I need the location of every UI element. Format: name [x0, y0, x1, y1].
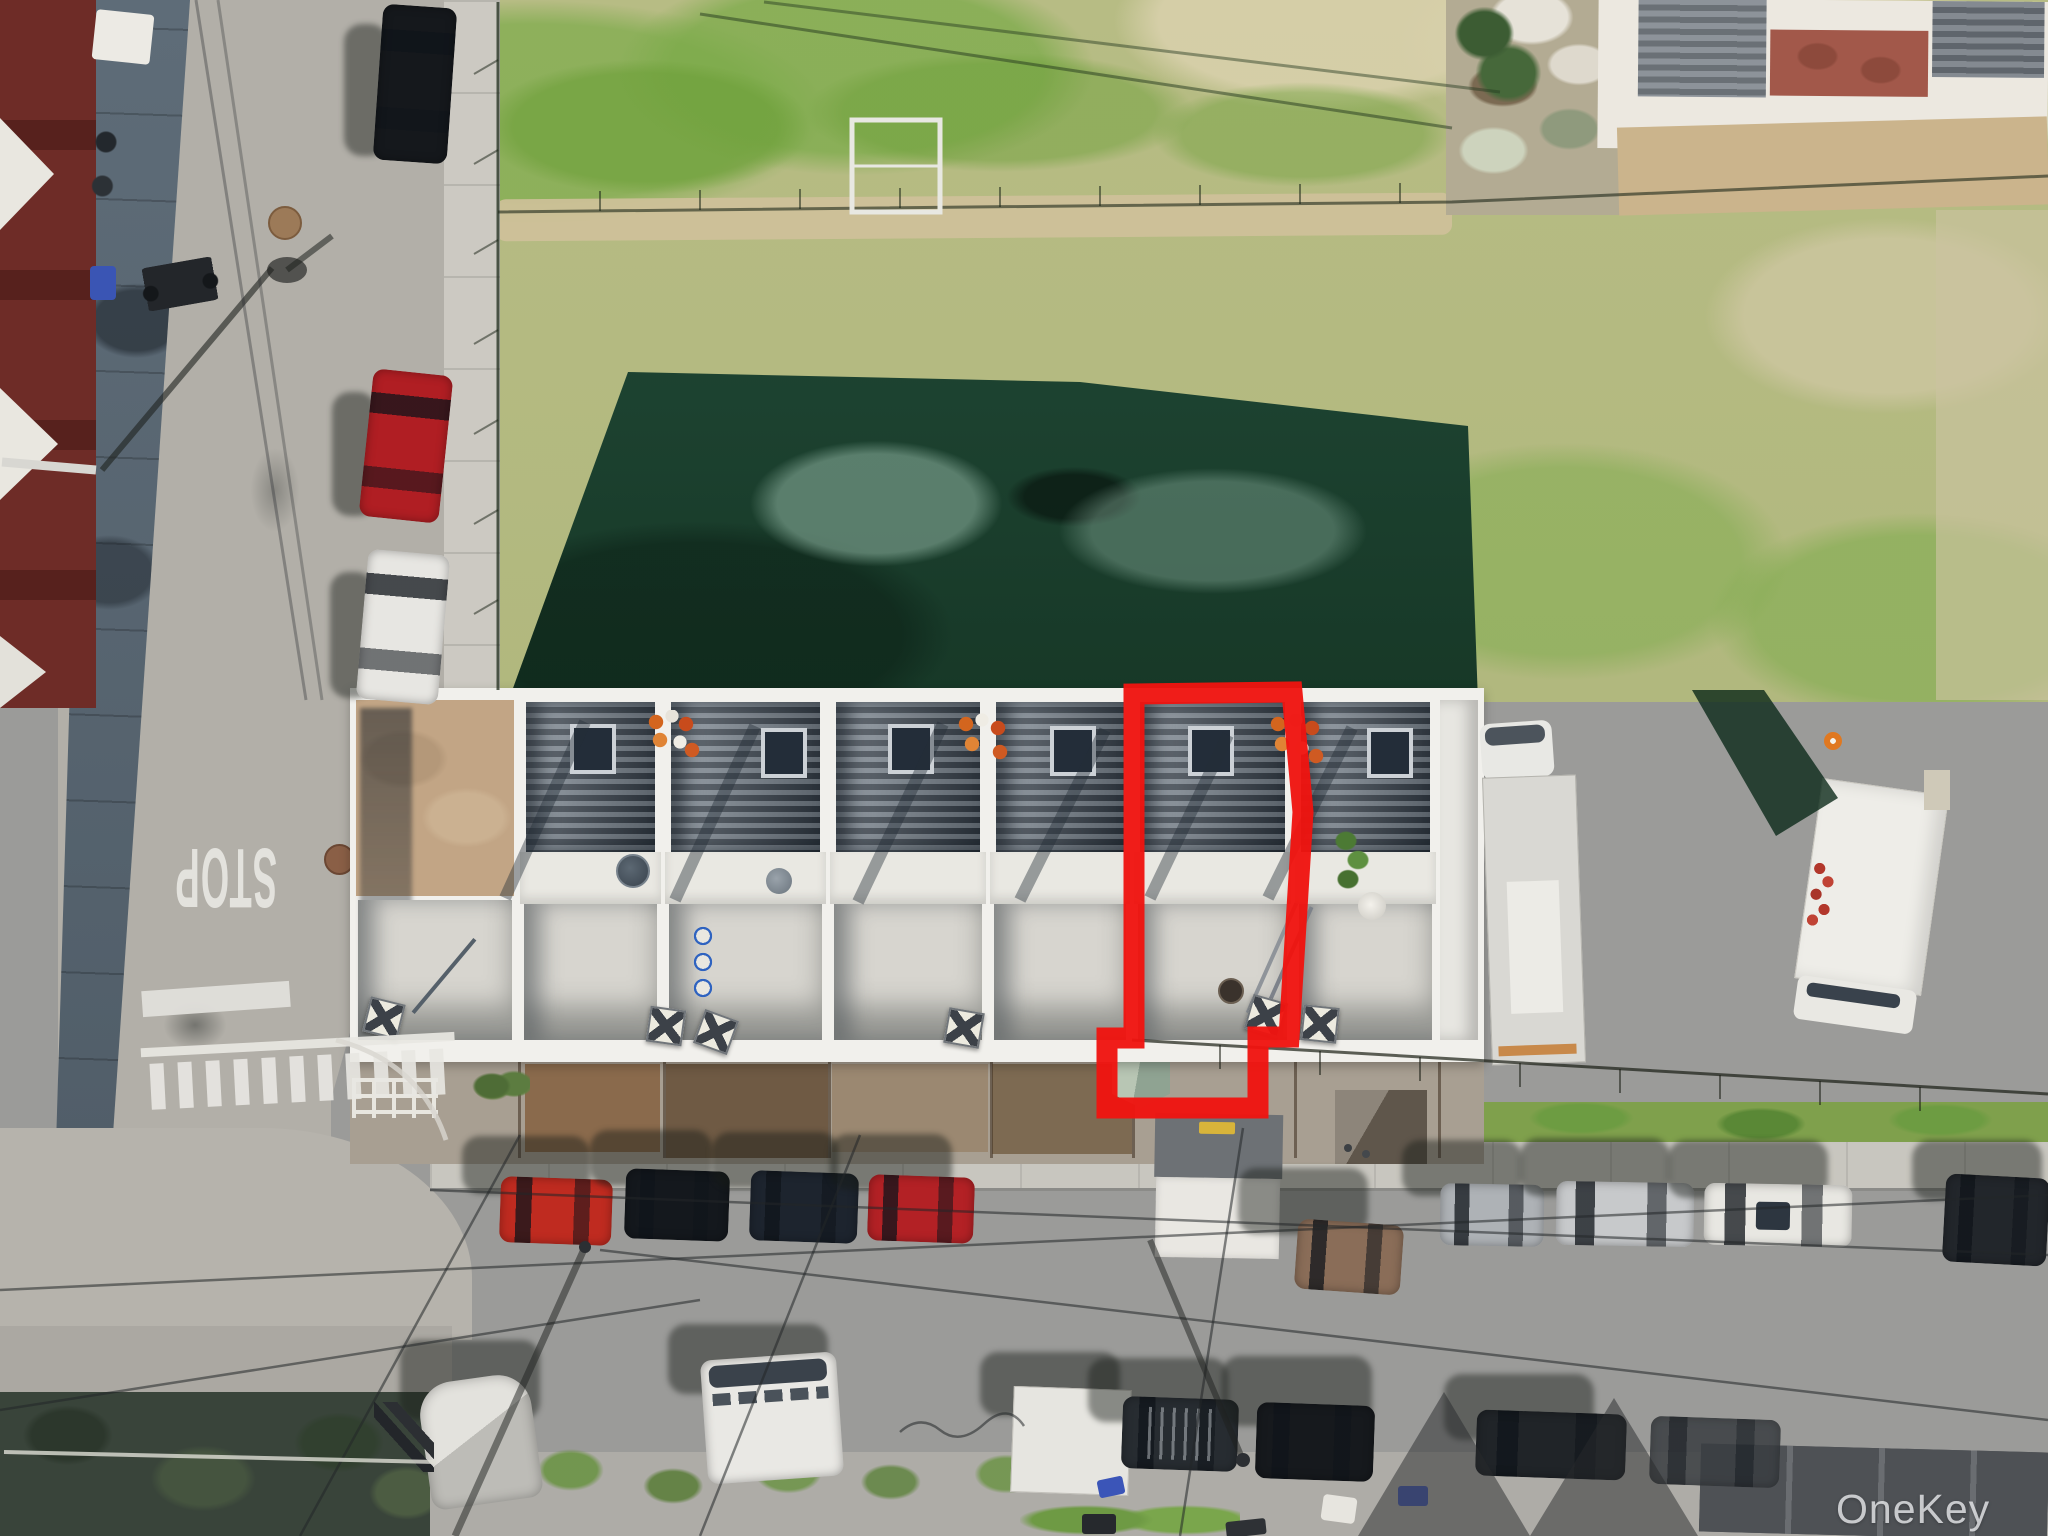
- corner-yard-fence: [352, 1078, 438, 1118]
- unit-6-front-band: [1134, 852, 1291, 904]
- pavement-stain: [240, 430, 310, 550]
- unit-8-end: [1440, 688, 1480, 1062]
- white-passenger-van: [700, 1351, 844, 1484]
- shingle-roof-section: [1932, 1, 2045, 78]
- parked-black-suv: [1255, 1402, 1376, 1482]
- parked-car-red-sedan: [867, 1174, 975, 1244]
- white-box-truck-roof: [92, 9, 155, 65]
- sidewalk-patch-right: [1924, 770, 1950, 810]
- parked-dark-car: [1649, 1416, 1781, 1488]
- van-windshield: [708, 1358, 827, 1388]
- stop-road-marking: STOP: [223, 830, 277, 926]
- sidewalk-debris-dark: [1225, 1518, 1266, 1536]
- satellite-dish: [766, 868, 792, 894]
- orange-buckets: [956, 712, 1016, 768]
- curbside-sidewalk-strip: [444, 0, 500, 694]
- parked-car-bronze-suv: [1294, 1218, 1405, 1295]
- yard-fence: [990, 1060, 993, 1158]
- parked-car-white: [356, 549, 451, 706]
- watermark: OneKey MLS: [1836, 1486, 2048, 1536]
- unit-2-deck: [524, 904, 657, 1040]
- exhaust-fan: [943, 1007, 985, 1049]
- hedge-clump: [466, 1064, 530, 1108]
- sunroof: [1756, 1202, 1790, 1231]
- exhaust-fan: [1300, 1004, 1340, 1044]
- toolbox: [1199, 1122, 1235, 1135]
- sidewalk-debris-blue: [1398, 1486, 1428, 1506]
- rooftop-plants: [1334, 828, 1374, 892]
- unit-6-shingle-roof: [1140, 702, 1285, 852]
- white-trailer: [1482, 774, 1586, 1065]
- trash-clutter: [88, 120, 124, 230]
- unit-5-skylight: [1050, 726, 1096, 776]
- unit-5-deck: [994, 904, 1126, 1040]
- shingle-roof-section: [1638, 0, 1767, 98]
- recycling-bin: [90, 266, 116, 300]
- white-barrel: [1358, 892, 1386, 920]
- satellite-dish: [616, 854, 650, 888]
- aerial-photo: STOP OneKey MLS: [0, 0, 2048, 1536]
- sidewalk-debris-white: [1320, 1494, 1357, 1524]
- unit-3-skylight: [761, 728, 807, 778]
- van-side-windows: [712, 1386, 829, 1406]
- grass-patch-bottom: [1020, 1504, 1240, 1536]
- rowhouses-far-left: [0, 0, 96, 708]
- end-wing: [1440, 700, 1478, 1040]
- orange-buckets: [646, 710, 706, 766]
- blue-barrels: [686, 924, 720, 1002]
- trailer-skid: [1498, 1044, 1576, 1057]
- sandy-right-band: [1936, 210, 2048, 700]
- parked-car-black: [373, 4, 458, 165]
- parked-car-white-suv: [1703, 1183, 1852, 1248]
- unit-7-skylight: [1367, 728, 1413, 778]
- white-van-roof: [1479, 720, 1555, 781]
- orange-buckets: [1268, 714, 1328, 770]
- trees-top-right: [1446, 0, 1542, 112]
- roof-rack: [1147, 1407, 1213, 1461]
- exhaust-fan: [646, 1006, 687, 1047]
- bollard: [1344, 1144, 1352, 1152]
- unit-3-front-band: [665, 852, 826, 904]
- traffic-cone: [1824, 732, 1842, 750]
- pavement-stain: [150, 990, 240, 1060]
- parked-car-red: [358, 368, 453, 524]
- unit-4-skylight: [888, 724, 934, 774]
- unit-2-skylight: [570, 724, 616, 774]
- dirt-strip: [1617, 116, 2048, 215]
- discarded-pipes: [374, 1402, 434, 1472]
- parked-car-red-suv: [499, 1176, 613, 1246]
- van-windshield: [1484, 724, 1545, 746]
- unit-5-front-band: [990, 852, 1130, 904]
- tarp-covered-car: [416, 1371, 544, 1511]
- rooftop-dark-circle: [1218, 978, 1244, 1004]
- manhole: [268, 206, 302, 240]
- brick-roof-patch: [1770, 30, 1929, 97]
- parked-dark-car: [1475, 1409, 1627, 1480]
- unit-6-skylight: [1188, 726, 1234, 776]
- bottom-left-sidewalk: [0, 1326, 452, 1396]
- trailer-panel: [1507, 880, 1564, 1014]
- truck-windshield: [1806, 982, 1901, 1009]
- sidewalk-debris-dark: [1082, 1514, 1116, 1534]
- bollard: [1362, 1150, 1370, 1158]
- unit-4-front-band: [830, 852, 986, 904]
- parked-car-dark: [1942, 1173, 2048, 1266]
- yard-fence: [1294, 1060, 1297, 1158]
- box-truck: [1778, 771, 1964, 1042]
- yard-deck: [992, 1064, 1132, 1154]
- grass-green-band: [444, 52, 1454, 202]
